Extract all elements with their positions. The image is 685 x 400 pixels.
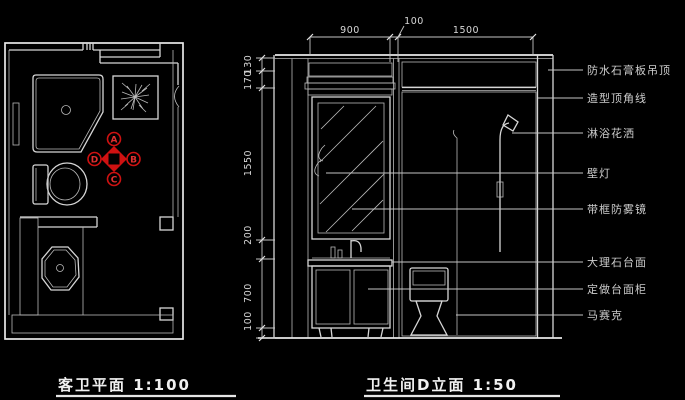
elev-vanity [308, 240, 392, 337]
plan-shower-drain [62, 106, 71, 115]
dim-top-900: 900 [340, 25, 360, 36]
elev-cabinet [312, 266, 390, 328]
plan-plant [113, 76, 158, 119]
elev-mirror [312, 97, 390, 239]
plan-caption: 客卫平面 1:100 [57, 376, 191, 394]
elevation-view: 900 100 1500 130 170 1550 200 700 100 [243, 16, 671, 396]
elev-toilet [410, 268, 448, 335]
label-crown-molding: 造型顶角线 [587, 91, 647, 105]
elev-ceiling-band-left [309, 63, 392, 76]
plan-sink-drain [57, 265, 64, 272]
plan-shower-tray [33, 75, 103, 152]
marker-letter-d: D [91, 156, 98, 166]
elev-wall-lamp [315, 145, 325, 176]
label-mosaic: 马赛克 [587, 308, 623, 322]
cad-drawing-canvas: A B C D 客卫平面 1:100 [0, 0, 685, 400]
marker-letter-b: B [130, 156, 137, 166]
plan-wall-lines [9, 43, 179, 315]
elev-shower-set [453, 115, 518, 335]
elev-annotation-leaders: 防水石膏板吊顶 造型顶角线 淋浴花洒 壁灯 带框防雾镜 大理石台面 定做台面柜 … [326, 63, 671, 322]
plan-sink [42, 227, 83, 315]
elev-cabinet-legs [319, 328, 383, 337]
elev-left-dimensions: 130 170 1550 200 700 100 [243, 55, 275, 341]
dim-top-1500: 1500 [453, 25, 479, 36]
elev-faucet [351, 240, 361, 258]
label-custom-cabinet: 定做台面柜 [587, 282, 647, 296]
label-wall-lamp: 壁灯 [587, 166, 611, 180]
marker-letter-a: A [111, 136, 118, 146]
elev-ceiling-band-right [402, 62, 536, 87]
elev-mosaic-wall [402, 92, 536, 336]
marker-letter-c: C [111, 176, 118, 186]
label-framed-mirror: 带框防雾镜 [587, 202, 647, 216]
dim-left-100: 100 [243, 311, 254, 331]
elev-mirror-reflections [320, 106, 384, 232]
cad-drawing: A B C D 客卫平面 1:100 [0, 0, 685, 400]
dim-left-170: 170 [243, 70, 254, 90]
label-gypsum-ceiling: 防水石膏板吊顶 [587, 63, 671, 77]
plan-hatched-walls [12, 218, 173, 333]
elevation-marker-square [109, 154, 120, 165]
elevation-marker: A B C D [88, 133, 140, 186]
plan-door-leaf [175, 86, 180, 107]
dim-left-700: 700 [243, 283, 254, 303]
plan-outer-wall [5, 43, 183, 339]
elev-countertop [308, 260, 392, 266]
dim-top-100: 100 [404, 16, 424, 27]
elev-shower-head [503, 115, 518, 131]
elev-shower-bar [453, 130, 457, 335]
label-marble-counter: 大理石台面 [587, 255, 647, 269]
floor-plan: A B C D 客卫平面 1:100 [5, 43, 236, 396]
dim-left-200: 200 [243, 225, 254, 245]
plan-toilet [33, 163, 87, 205]
label-shower-head: 淋浴花洒 [587, 127, 635, 140]
elevation-caption: 卫生间D立面 1:50 [366, 376, 518, 394]
dim-left-1550: 1550 [243, 150, 254, 176]
